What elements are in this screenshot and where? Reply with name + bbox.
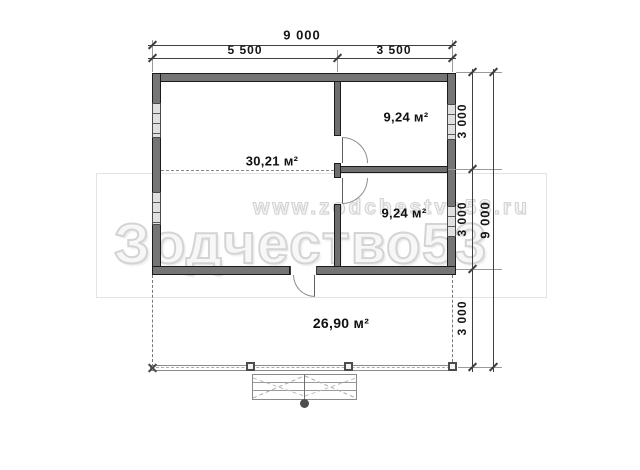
interior-wall-vertical-lower — [334, 204, 341, 267]
room-area-label-top-right: 9,24 м² — [384, 110, 429, 125]
terrace-railing-bottom — [150, 365, 456, 371]
extension-line — [458, 367, 502, 368]
dim-label-right-2: 3 000 — [455, 201, 469, 236]
interior-wall-vertical-upper — [334, 81, 341, 136]
dim-label-right-3: 3 000 — [455, 300, 469, 335]
dim-label-right-total: 9 000 — [478, 201, 493, 239]
interior-wall-horizontal — [340, 166, 448, 173]
window-left-upper — [152, 103, 161, 138]
terrace-door-jamb-right — [316, 266, 317, 275]
entrance-steps — [252, 372, 357, 410]
exterior-wall-bottom-left-segment — [152, 266, 290, 275]
dim-label-right-1: 3 000 — [455, 103, 469, 138]
dim-label-top-right: 3 500 — [376, 43, 411, 57]
door-swing-top-room — [342, 137, 368, 163]
terrace-post — [344, 362, 353, 371]
room-area-label-terrace: 26,90 м² — [313, 315, 369, 331]
loft-dashed-line — [161, 170, 334, 171]
room-area-label-main: 30,21 м² — [246, 154, 299, 169]
dim-label-top-left: 5 500 — [227, 43, 262, 57]
exterior-wall-bottom-right-segment — [316, 266, 456, 275]
terrace-edge-right — [452, 275, 453, 367]
room-area-label-bottom-right: 9,24 м² — [382, 206, 427, 221]
terrace-post — [246, 362, 255, 371]
terrace-door-jamb-left — [290, 266, 291, 275]
terrace-edge-left — [152, 275, 153, 367]
dimension-line-top-segments — [148, 58, 456, 59]
extension-line — [456, 72, 502, 73]
terrace-post — [448, 362, 457, 371]
dimension-line-right-segments — [472, 69, 473, 372]
exterior-wall-top — [152, 73, 456, 82]
window-left-lower — [152, 192, 161, 225]
extension-line — [456, 269, 502, 270]
dimension-line-right-total — [493, 69, 494, 372]
extension-line — [337, 50, 338, 72]
dim-label-top-total: 9 000 — [283, 28, 321, 43]
floor-plan-canvas: www.zodchestvo53.ru Зодчество53 — [0, 0, 640, 470]
